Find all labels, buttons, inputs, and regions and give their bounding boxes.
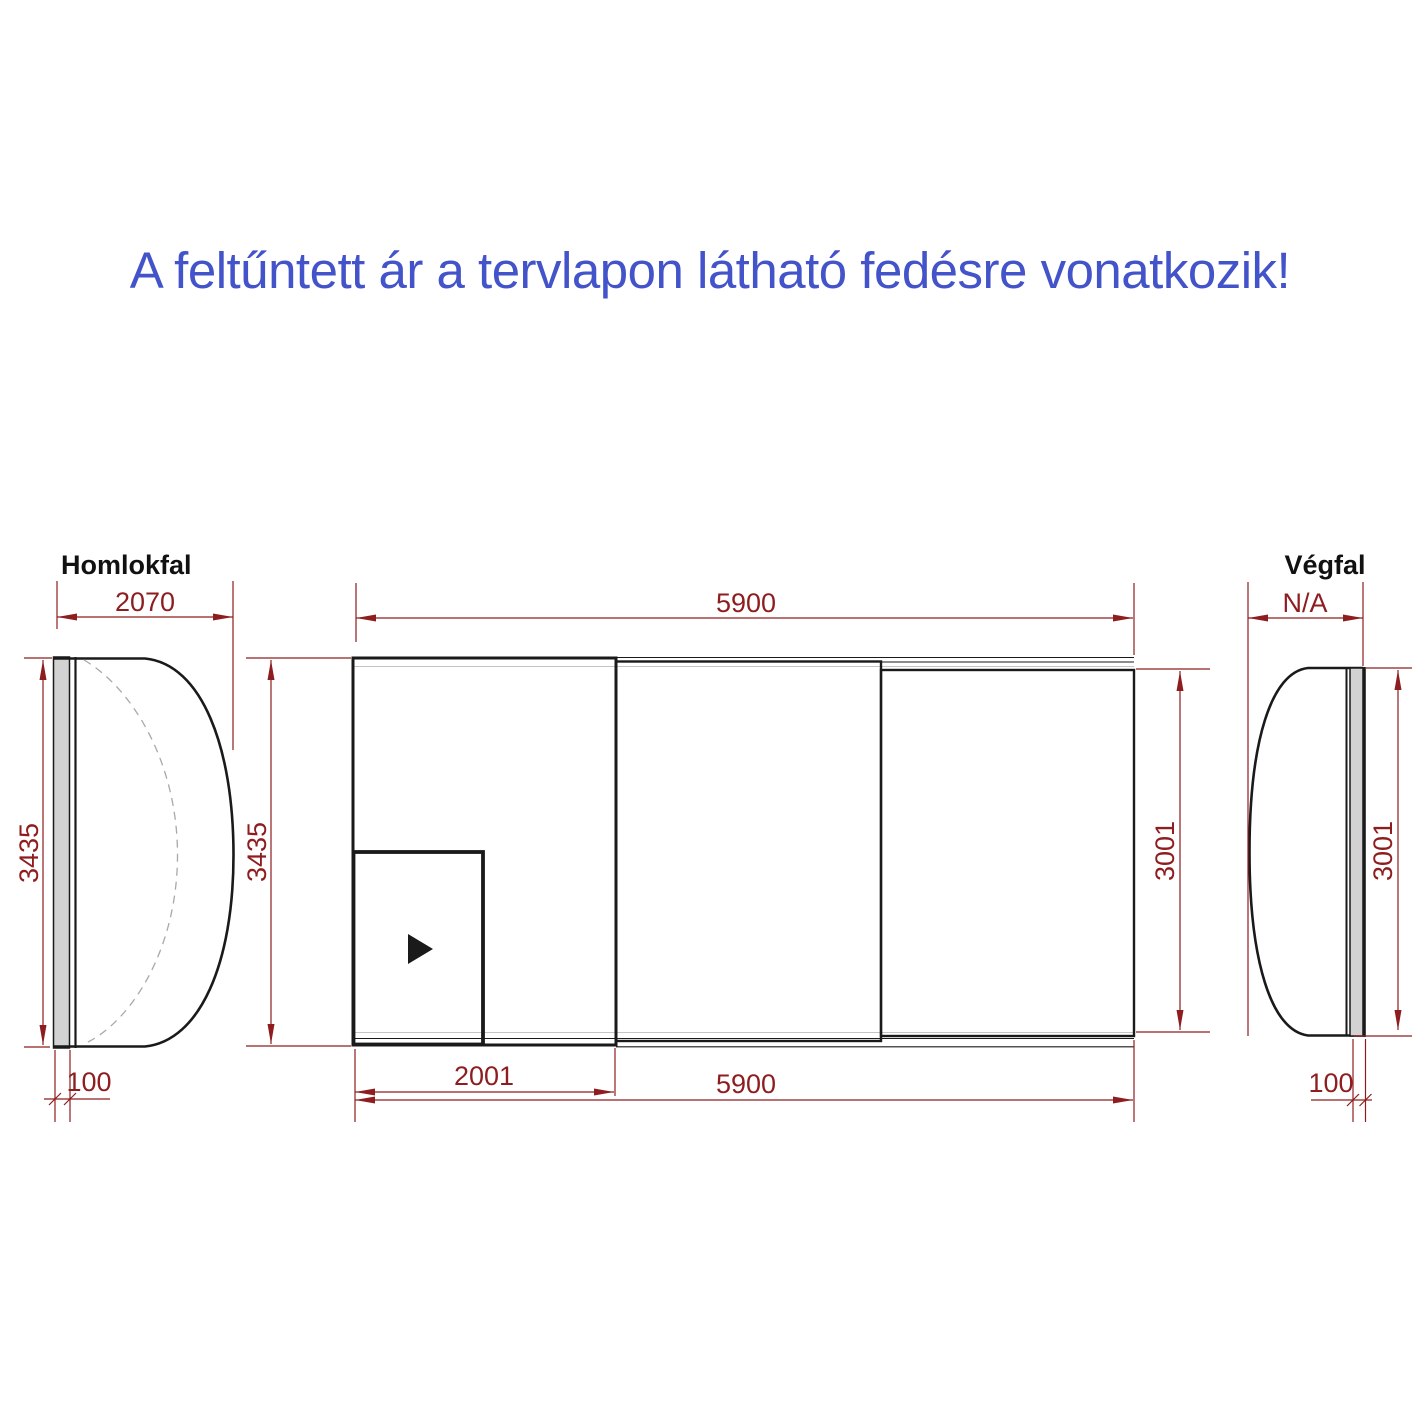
front-wall-inner-dashed-curve	[84, 660, 178, 1044]
plan-door-width-dim-label: 2001	[454, 1061, 514, 1091]
end-wall-dimensions: N/A 3001 100	[1248, 582, 1412, 1122]
plan-view: 5900 3435 3001 2001 5900	[242, 583, 1210, 1122]
plan-bottom-length-dim-label: 5900	[716, 1069, 776, 1099]
front-wall-height-dim-label: 3435	[14, 823, 44, 883]
front-wall-dimensions: 2070 3435 100	[14, 581, 233, 1122]
plan-top-length-dim-label: 5900	[716, 588, 776, 618]
front-wall-profile	[54, 657, 234, 1048]
front-wall-thickness-dim-label: 100	[66, 1067, 111, 1097]
end-wall-width-dim-label: N/A	[1282, 588, 1327, 618]
front-wall-dome-outline	[54, 659, 234, 1047]
end-wall-title: Végfal	[1284, 550, 1365, 580]
end-wall-strip	[1350, 668, 1363, 1036]
end-wall-profile	[1250, 667, 1365, 1037]
technical-drawing-canvas: Homlokfal 2070 3435 100	[0, 0, 1420, 1420]
end-wall-thickness-dim-label: 100	[1308, 1068, 1353, 1098]
end-wall-height-dim-label: 3001	[1368, 821, 1398, 881]
plan-right-height-dim-label: 3001	[1150, 821, 1180, 881]
plan-segment-2	[616, 662, 881, 1042]
plan-segment-3	[881, 670, 1134, 1036]
front-wall-width-dim-label: 2070	[115, 587, 175, 617]
front-wall-title: Homlokfal	[61, 550, 192, 580]
front-wall-strip	[54, 657, 70, 1048]
front-wall-view: Homlokfal 2070 3435 100	[14, 550, 234, 1122]
end-wall-view: Végfal N/A 3001 100	[1248, 550, 1412, 1122]
plan-left-height-dim-label: 3435	[242, 822, 272, 882]
door-direction-arrow-icon	[408, 934, 433, 964]
